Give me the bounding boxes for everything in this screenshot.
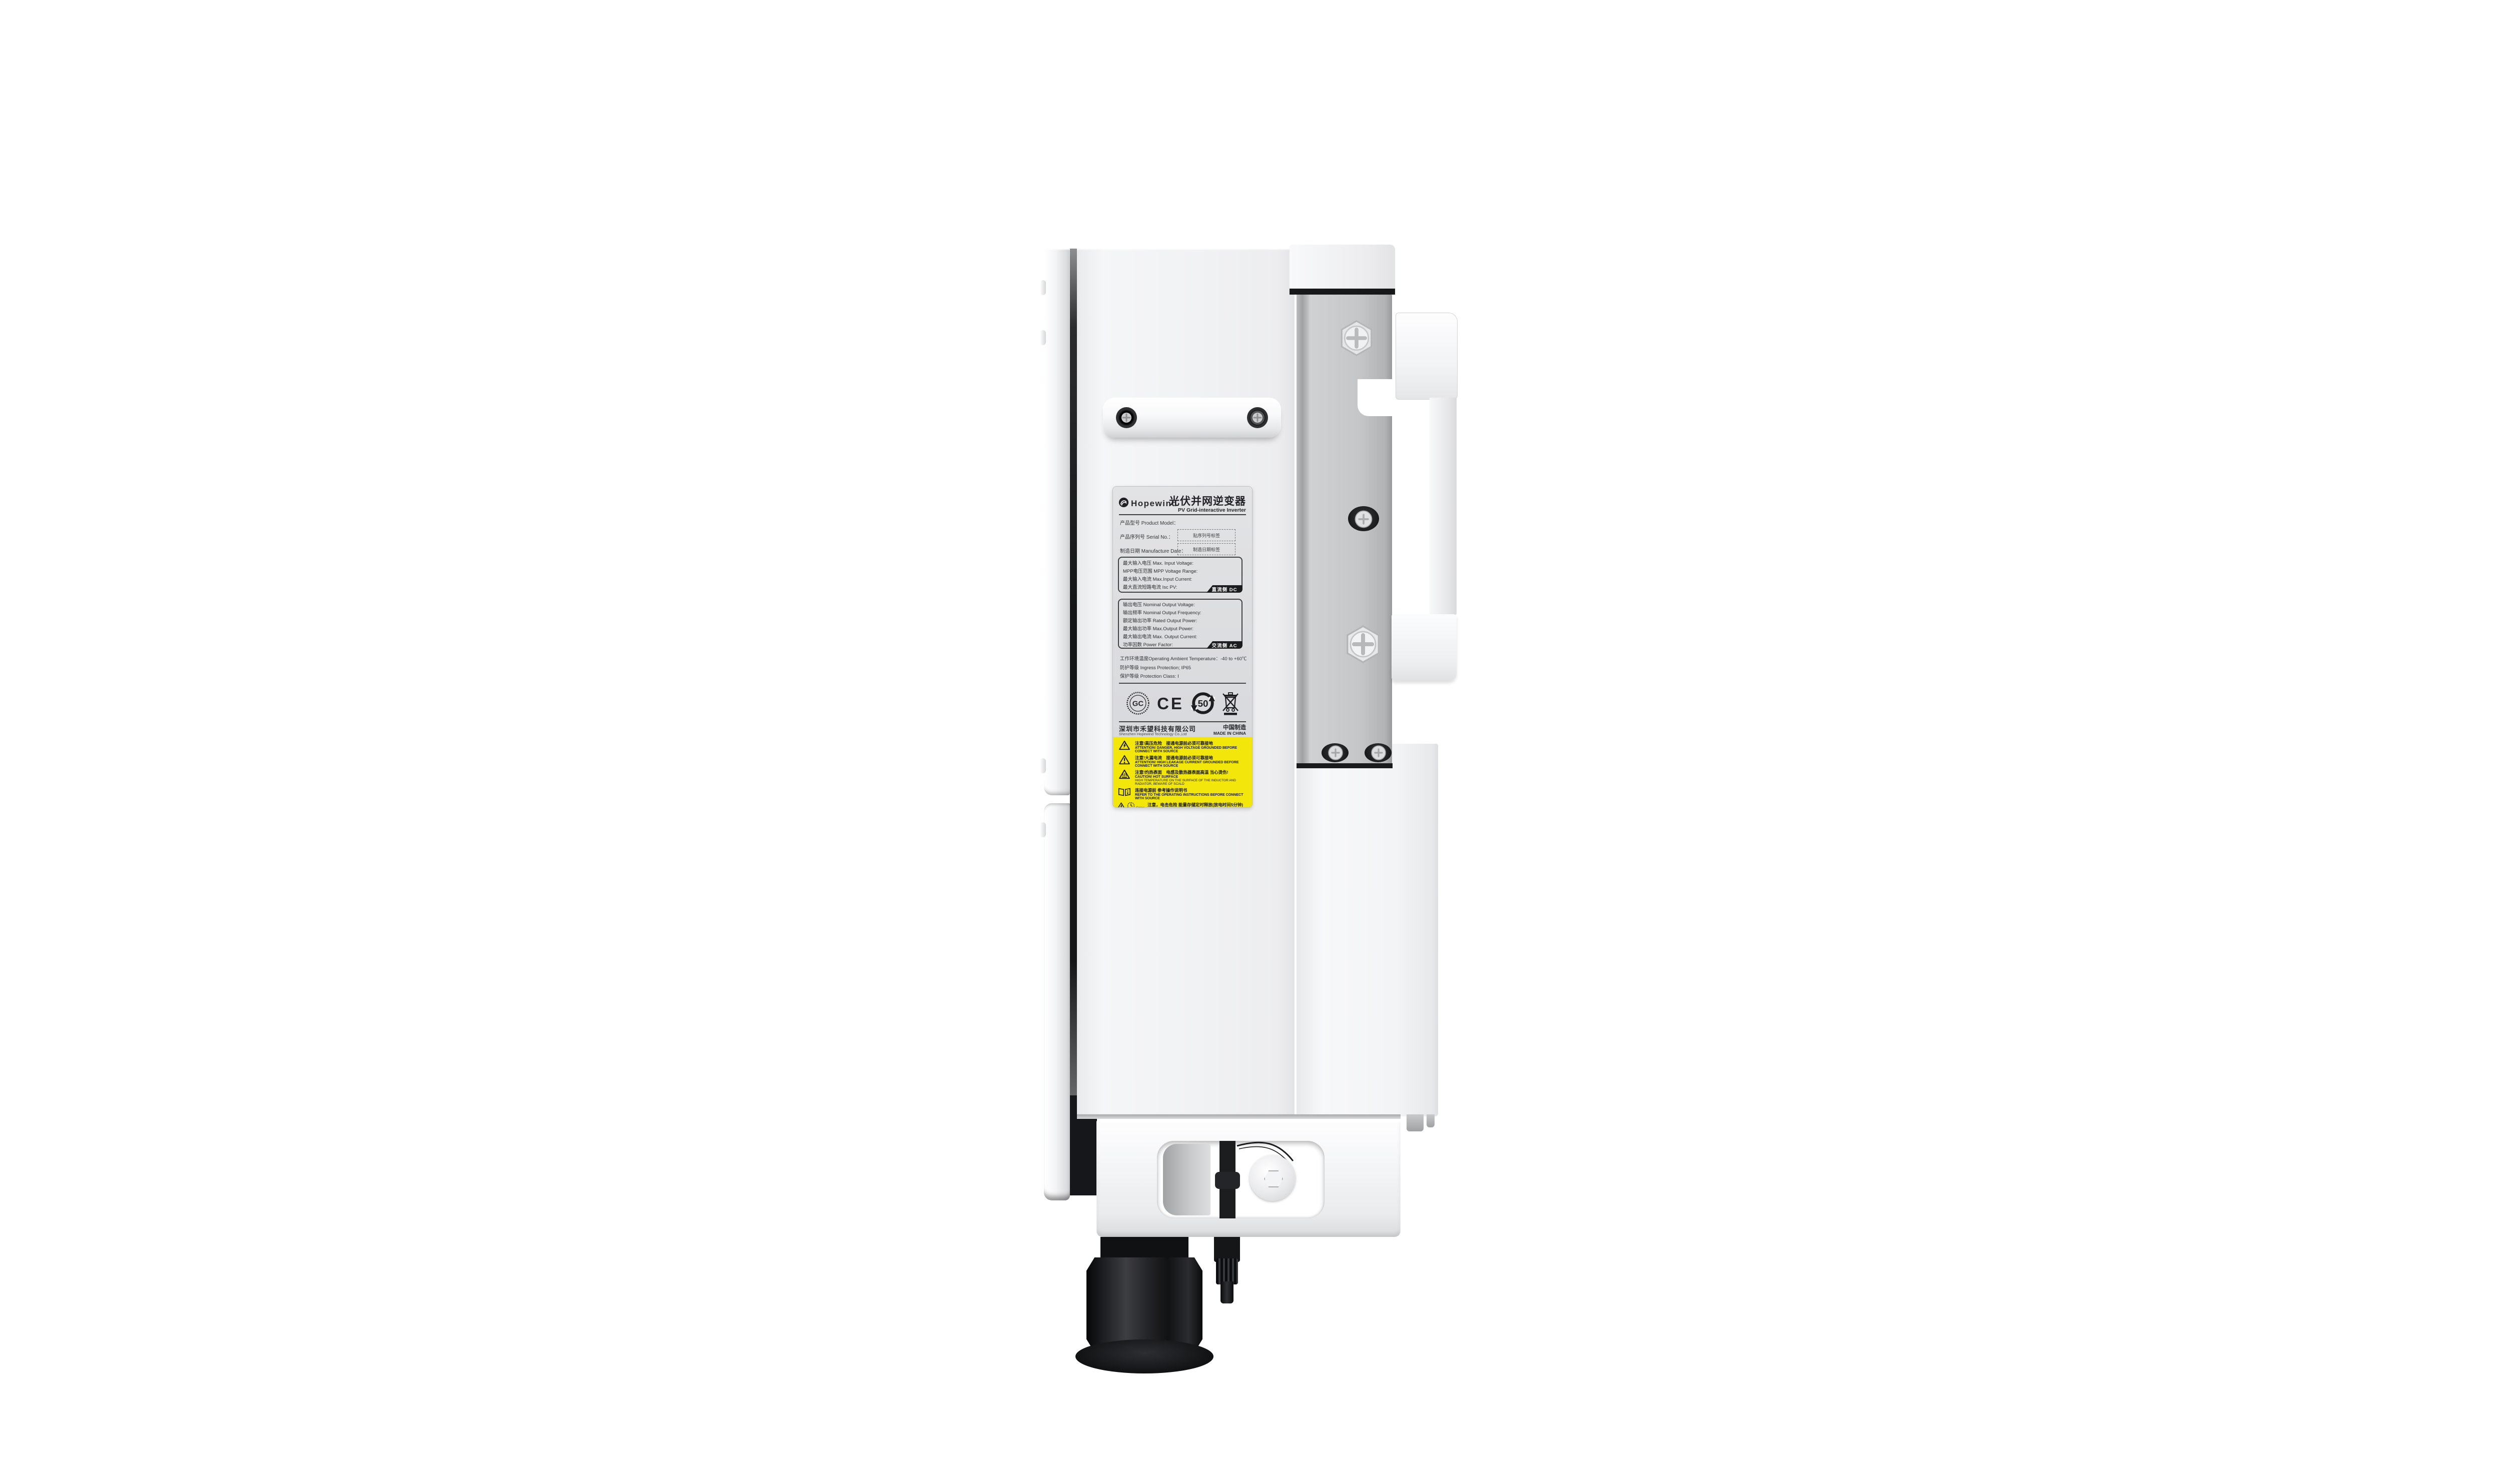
made-in-cn: 中国制造 — [1223, 723, 1246, 731]
warning-en: ATTENTION! DANGER, HIGH VOLTAGE GROUNDED… — [1135, 746, 1248, 753]
warning-cn: 注意，电击危险 能量存储定时释放(放电时间5分钟) — [1147, 802, 1248, 808]
label-title-cn: 光伏并网逆变器 — [1169, 493, 1246, 508]
wall-hanger-strip — [1430, 398, 1457, 615]
handle-screw-icon — [1246, 406, 1269, 429]
ac-row: 输出电压 Nominal Output Voltage: — [1119, 601, 1241, 609]
cert-divider-bottom — [1119, 721, 1246, 722]
cable-gland-nut — [1086, 1257, 1202, 1352]
antenna-connector-tip — [1220, 1281, 1233, 1303]
made-in-en: MADE IN CHINA — [1213, 731, 1246, 736]
weee-bin-icon — [1221, 691, 1239, 716]
label-title-en: PV Grid-interactive Inverter — [1178, 507, 1246, 513]
ac-row: 最大输出电流 Max. Output Current: — [1119, 633, 1241, 641]
company-name-en: Shenzhen Hopewind Technology Co.,Ltd — [1119, 732, 1186, 736]
rear-tab — [1427, 1114, 1435, 1127]
high-voltage-warning-icon — [1117, 802, 1125, 808]
small-screw-icon — [1369, 743, 1389, 763]
ac-side-tag: 交流侧 AC — [1206, 641, 1242, 649]
bracket-bottom-gap — [1297, 763, 1393, 768]
field-manufacture-date: 制造日期 Manufacture Date： — [1120, 547, 1186, 554]
dc-spec-box: 最大输入电压 Max. Input Voltage: MPP电压范围 MPP V… — [1118, 557, 1242, 593]
env-ip-row: 防护等级 Ingress Protection; IP65 — [1120, 664, 1191, 671]
rear-tab — [1407, 1114, 1424, 1131]
manual-book-icon — [1117, 787, 1132, 797]
warning-high-voltage: 注意!高压危险 接通电源前必须可靠接地 ATTENTION! DANGER, H… — [1117, 740, 1248, 753]
warning-hot-surface: 注意!灼热表面 电感及散热器表面高温 当心烫伤! CAUTION! HOT SU… — [1117, 769, 1248, 786]
small-screw-icon — [1326, 743, 1346, 763]
warning-en: ATTENTION! HIGH LEAKAGE CURRENT GROUNDED… — [1135, 761, 1248, 768]
fin-hinge-bump — [1040, 280, 1046, 295]
valve-disc — [1249, 1155, 1296, 1201]
valve-hex-nut — [1264, 1170, 1283, 1187]
mounting-bracket — [1310, 295, 1392, 765]
heatsink-fin-upper — [1044, 249, 1070, 795]
warning-read-manual: 连接电源前 参考操作说明书 REFER TO THE OPERATING INS… — [1117, 787, 1248, 800]
inverter-product-photo: Hopewind 光伏并网逆变器 PV Grid-interactive Inv… — [0, 0, 2501, 1484]
cap-gap-shadow — [1290, 289, 1395, 295]
nameplate-label: Hopewind 光伏并网逆变器 PV Grid-interactive Inv… — [1112, 486, 1253, 808]
fin-hinge-bump — [1040, 758, 1046, 773]
certification-icons-row: GC CE 50 — [1113, 688, 1252, 719]
field-serial-no: 产品序列号 Serial No.： — [1120, 533, 1173, 540]
ac-row: 最大输出功率 Max.Output Power: — [1119, 625, 1241, 633]
fin-hinge-bump — [1040, 330, 1046, 345]
ac-row: 输出频率 Nominal Output Frequency: — [1119, 609, 1241, 617]
bottom-connection-flange — [1096, 1121, 1401, 1237]
discharge-clock-icon — [1127, 802, 1135, 808]
warning-leakage-current: 注意!大漏电流 接通电源前必须可靠接地 ATTENTION! HIGH LEAK… — [1117, 755, 1248, 768]
warning-stored-energy: 5mins 注意，电击危险 能量存储定时释放(放电时间5分钟) RISK OF … — [1117, 802, 1248, 808]
ac-row: 额定输出功率 Rated Output Power: — [1119, 617, 1241, 625]
warning-cn: 注意!高压危险 接通电源前必须可靠接地 — [1135, 740, 1248, 746]
hot-surface-warning-icon — [1117, 769, 1132, 779]
warning-en: CAUTION! HOT SURFACE — [1135, 775, 1248, 779]
wall-hanger-hook-block — [1392, 614, 1457, 681]
rear-lower-compartment — [1297, 744, 1438, 1116]
dc-side-tag: 直流侧 DC — [1206, 585, 1242, 593]
warning-en: REFER TO THE OPERATING INSTRUCTIONS BEFO… — [1135, 793, 1248, 800]
cutout-inner-plate — [1163, 1144, 1210, 1215]
hopewind-logo-icon — [1118, 497, 1129, 508]
warning-panel: 注意!高压危险 接通电源前必须可靠接地 ATTENTION! DANGER, H… — [1113, 737, 1252, 807]
date-sticker-box: 制造日期标签 — [1177, 543, 1235, 555]
enclosure-bottom-seam — [1077, 1114, 1401, 1119]
warning-cn: 注意!灼热表面 电感及散热器表面高温 当心烫伤! — [1135, 769, 1248, 775]
antenna-connector-ribs — [1216, 1258, 1238, 1284]
field-product-model: 产品型号 Product Model： — [1120, 519, 1178, 526]
hex-screw-icon — [1343, 624, 1383, 664]
high-voltage-warning-icon — [1117, 740, 1132, 750]
ac-spec-box: 输出电压 Nominal Output Voltage: 输出频率 Nomina… — [1118, 599, 1242, 649]
hex-screw-icon — [1338, 319, 1376, 357]
handle-screw-icon — [1115, 406, 1138, 429]
env-class-row: 保护等级 Protection Class: I — [1120, 672, 1179, 679]
env-temperature-row: 工作环境温度Operating Ambient Temperature：-40 … — [1120, 655, 1247, 662]
dc-row: MPP电压范围 MPP Voltage Range: — [1119, 568, 1241, 576]
svg-text:50: 50 — [1197, 698, 1208, 709]
wall-hanger-plate — [1396, 313, 1458, 400]
cert-divider-top — [1119, 683, 1246, 684]
bracket-shadow-column — [1297, 295, 1310, 765]
header-divider — [1119, 514, 1246, 515]
leakage-current-warning-icon — [1117, 755, 1132, 765]
nameplate-spec-area: Hopewind 光伏并网逆变器 PV Grid-interactive Inv… — [1113, 487, 1252, 737]
warning-cn: 注意!大漏电流 接通电源前必须可靠接地 — [1135, 755, 1248, 761]
dc-row: 最大输入电压 Max. Input Voltage: — [1119, 560, 1241, 568]
dc-row: 最大输入电流 Max.Input Current: — [1119, 576, 1241, 584]
bracket-notch-cutout — [1358, 379, 1392, 416]
serial-sticker-box: 贴序列号标签 — [1177, 529, 1235, 541]
warning-cn: 连接电源前 参考操作说明书 — [1135, 787, 1248, 793]
heatsink-fin-lower — [1044, 803, 1070, 1200]
fin-hinge-bump — [1040, 822, 1046, 837]
small-screw-icon — [1353, 508, 1375, 530]
svg-text:CE: CE — [1157, 694, 1184, 713]
ce-mark-icon: CE — [1156, 693, 1184, 713]
carry-handle — [1103, 398, 1281, 438]
svg-text:GC: GC — [1132, 700, 1143, 708]
cn-energy-cert-icon: GC — [1126, 691, 1150, 715]
panel-seam — [1070, 249, 1077, 1116]
discharge-time-label: 5mins — [1136, 807, 1144, 808]
cable-gland-base — [1075, 1339, 1213, 1373]
warning-en2: HIGH TEMPERATURE ON THE SURFACE OF THE I… — [1135, 779, 1248, 786]
flange-cutout-window — [1157, 1141, 1325, 1218]
efup-50-icon: 50 — [1191, 691, 1215, 715]
top-rear-cap — [1290, 245, 1395, 290]
